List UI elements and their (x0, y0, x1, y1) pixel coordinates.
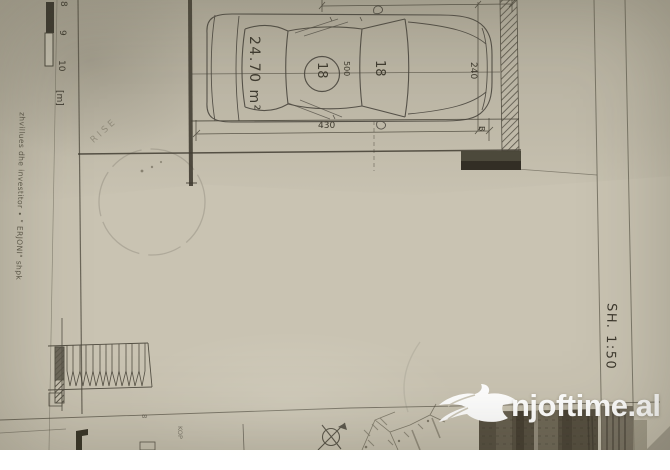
scale-note: SH. 1:50 (602, 303, 618, 371)
plan-linework (0, 0, 670, 450)
scanned-plan-photo: 8 9 10 [m] 24.70 m² 18 500 18 430 240 B … (0, 0, 670, 450)
paper-edge (646, 426, 670, 450)
bay-length-dim: 500 (342, 61, 351, 76)
scale-tick-9: 9 (57, 30, 67, 36)
sheet-border-lines (0, 0, 660, 450)
scale-tick-10: 10 (56, 60, 66, 71)
bird-logo-icon (426, 384, 522, 430)
scale-tick-8: 8 (58, 1, 68, 7)
parking-area-label: 24.70 m² (246, 36, 262, 112)
stamp-circle (99, 149, 420, 412)
scale-unit-label: [m] (54, 90, 64, 106)
watermark-text: njoftime.al (511, 388, 661, 424)
car-length-dim: 430 (318, 121, 335, 131)
fence-detail (48, 318, 152, 411)
parking-bay (78, 0, 597, 186)
scale-bar (45, 2, 54, 66)
bay-width-dim: 240 (468, 62, 478, 79)
bottom-word-fragment: KOP (176, 426, 184, 439)
spot-number: 18 (372, 60, 387, 77)
compass-rose-icon (318, 423, 347, 450)
axis-label: B (477, 126, 486, 132)
spot-circle-number: 18 (314, 62, 329, 79)
bottom-strip (76, 424, 244, 450)
line-mark: 8 (140, 414, 148, 418)
